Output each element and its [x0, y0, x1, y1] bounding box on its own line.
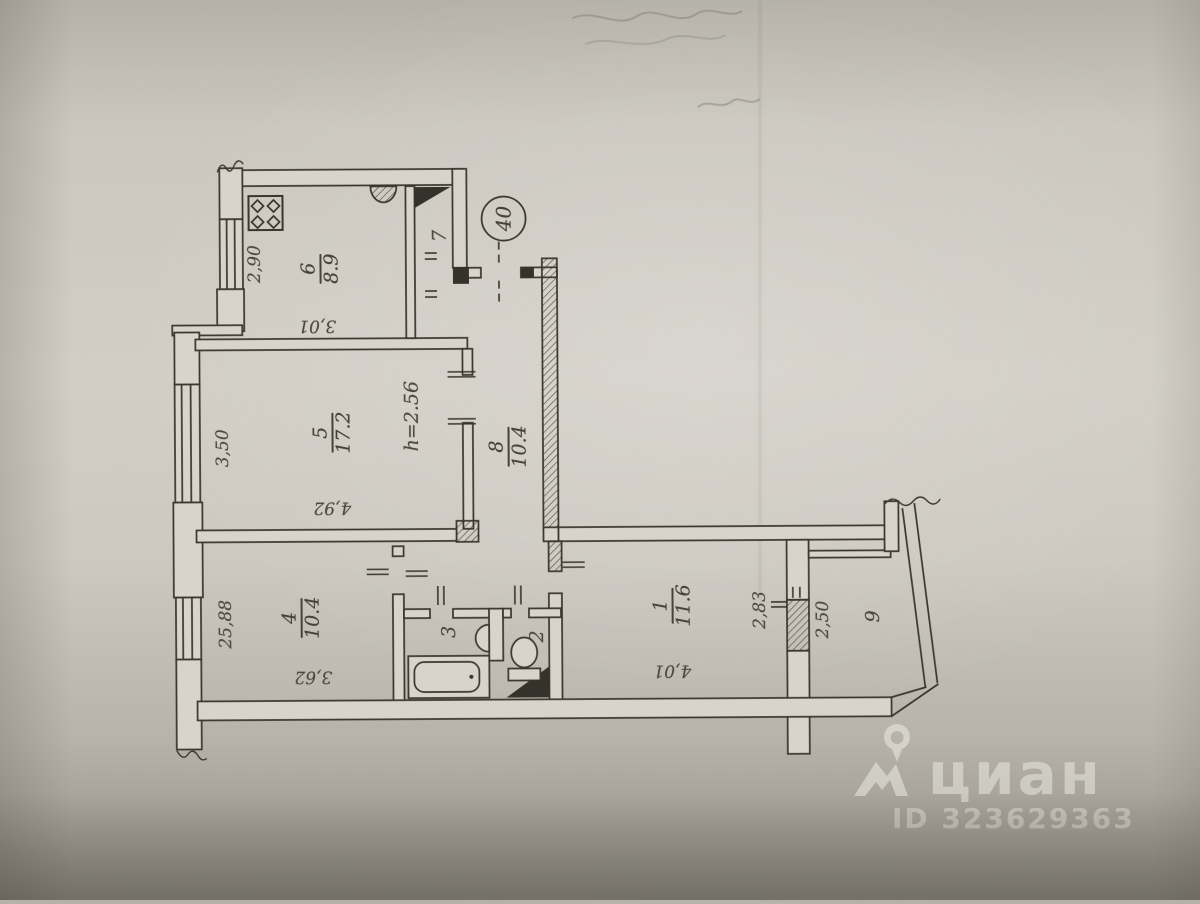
room-number: 5	[311, 427, 330, 439]
room-2-label: 2	[526, 630, 548, 642]
door-marks	[365, 240, 800, 610]
cian-brand-text: циан	[928, 748, 1103, 800]
dim-room5-length: 4,92	[313, 498, 351, 518]
dim-room4-length: 3,62	[294, 667, 332, 687]
dim-left-total: 25,88	[216, 600, 236, 649]
room-number: 8	[488, 441, 507, 453]
room-3-label: 3	[438, 626, 460, 638]
room-4-label: 4 10.4	[281, 597, 324, 640]
dim-room1-length: 4,01	[653, 660, 691, 680]
bathtub-icon	[408, 656, 489, 698]
sink-icon	[476, 625, 490, 652]
room-8-label: 8 10.4	[487, 425, 530, 468]
room-number: 6	[299, 263, 318, 275]
dim-room5-width: 3,50	[213, 429, 233, 467]
dim-balcony-width: 2,50	[813, 601, 833, 639]
apartment-number: 40	[492, 206, 516, 232]
dim-kitchen-length: 3,01	[298, 316, 336, 336]
room-area: 10.4	[511, 425, 531, 467]
stove-icon	[248, 196, 282, 230]
room-number: 4	[281, 612, 300, 624]
room-5-label: 5 17.2	[311, 411, 354, 454]
room-number: 1	[652, 600, 671, 612]
room-1-label: 1 11.6	[651, 584, 694, 627]
handwriting-marks	[572, 10, 760, 108]
dim-room1-width: 2,83	[750, 591, 770, 629]
room-area: 8.9	[323, 253, 343, 283]
room-9-label: 9	[862, 610, 884, 622]
room-area: 11.6	[675, 584, 695, 626]
cian-id-text: ID 323629363	[892, 802, 1182, 835]
room-7-label: 7	[429, 230, 451, 242]
cian-watermark: циан ID 323629363	[852, 722, 1182, 835]
cian-logo-icon	[852, 722, 918, 800]
toilet-icon	[508, 637, 540, 680]
walls	[170, 9, 942, 760]
room-area: 17.2	[335, 411, 355, 453]
room-area: 10.4	[304, 597, 324, 639]
room-6-label: 6 8.9	[299, 253, 342, 283]
ceiling-height-label: h=2.56	[401, 381, 423, 452]
dim-kitchen-width: 2,90	[245, 245, 265, 283]
vent-icon	[370, 186, 396, 202]
